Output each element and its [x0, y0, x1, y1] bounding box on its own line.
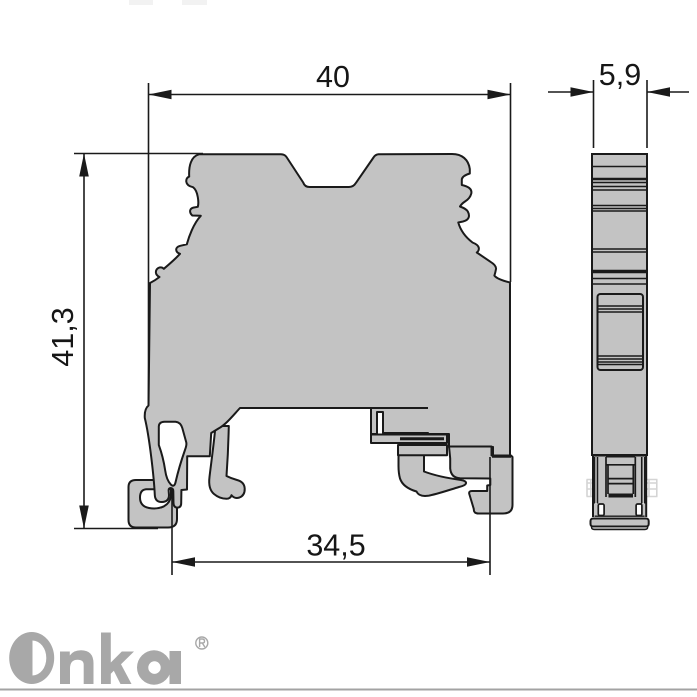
svg-text:5,9: 5,9 [599, 58, 641, 92]
svg-text:34,5: 34,5 [306, 529, 365, 563]
svg-text:41,3: 41,3 [46, 307, 80, 366]
svg-text:40: 40 [316, 60, 350, 94]
